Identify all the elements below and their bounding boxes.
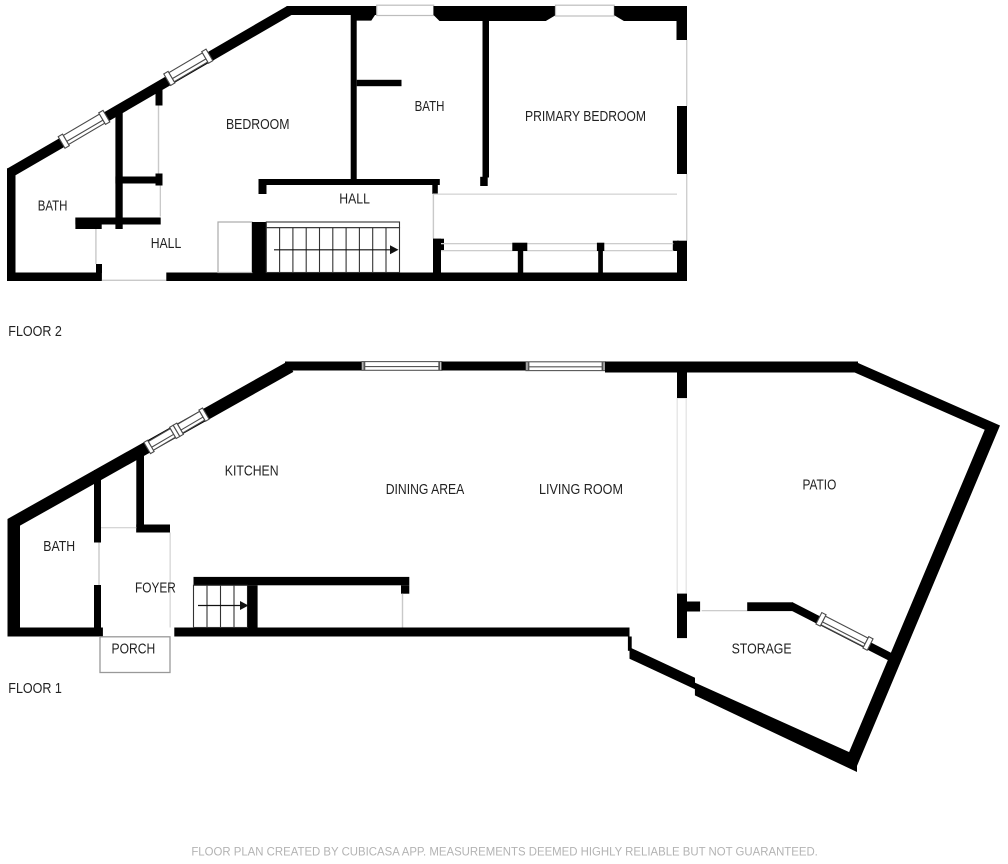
svg-text:PORCH: PORCH xyxy=(112,642,156,658)
svg-text:BEDROOM: BEDROOM xyxy=(226,117,290,133)
svg-text:PATIO: PATIO xyxy=(803,478,837,494)
svg-text:HALL: HALL xyxy=(151,236,182,252)
svg-text:FLOOR PLAN CREATED BY CUBICASA: FLOOR PLAN CREATED BY CUBICASA APP. MEAS… xyxy=(191,847,818,859)
svg-text:FLOOR 2: FLOOR 2 xyxy=(8,324,62,340)
svg-text:KITCHEN: KITCHEN xyxy=(225,464,279,480)
svg-text:FOYER: FOYER xyxy=(135,581,176,597)
svg-text:LIVING ROOM: LIVING ROOM xyxy=(539,482,623,498)
svg-text:BATH: BATH xyxy=(38,199,68,215)
svg-text:HALL: HALL xyxy=(339,191,370,207)
svg-text:BATH: BATH xyxy=(415,99,445,115)
svg-text:PRIMARY BEDROOM: PRIMARY BEDROOM xyxy=(525,109,646,125)
svg-text:STORAGE: STORAGE xyxy=(732,641,792,657)
svg-text:DINING AREA: DINING AREA xyxy=(386,482,465,498)
svg-text:FLOOR 1: FLOOR 1 xyxy=(8,681,62,697)
svg-text:BATH: BATH xyxy=(43,539,75,555)
